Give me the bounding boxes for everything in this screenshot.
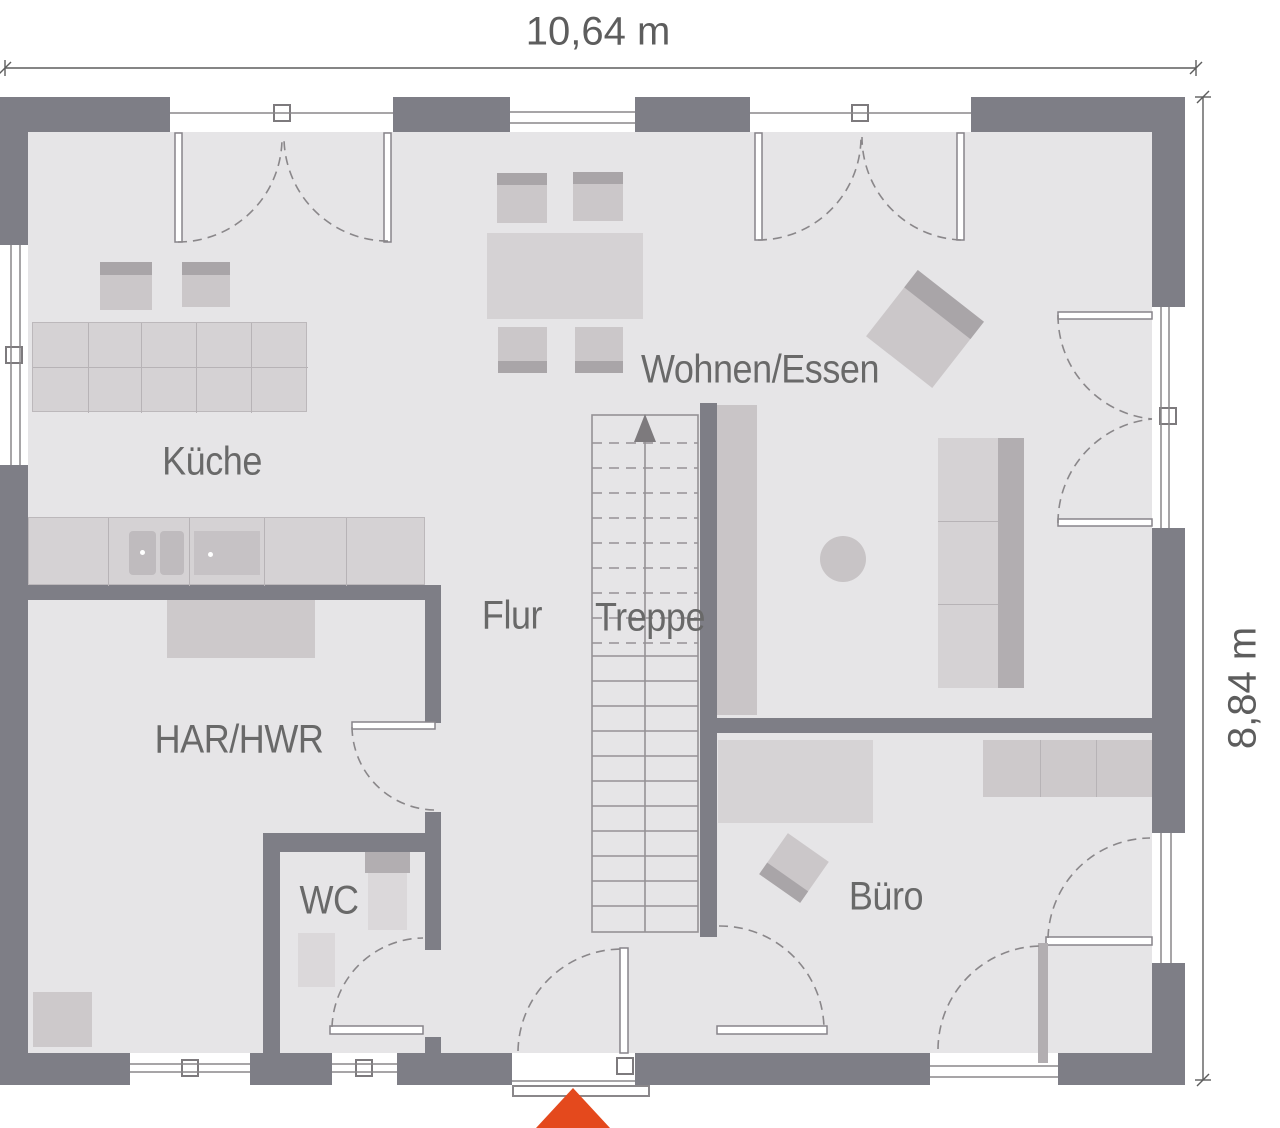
- door-leaf: [175, 133, 182, 242]
- door-leaf: [755, 133, 762, 240]
- door-leaf: [957, 133, 964, 240]
- door-leaf: [1058, 312, 1152, 319]
- label-hallway: Flur: [482, 594, 542, 639]
- door-leaf: [717, 1026, 827, 1034]
- label-office: Büro: [849, 875, 923, 920]
- door-leaf: [1046, 937, 1152, 945]
- label-kitchen: Küche: [162, 440, 262, 485]
- floor-plan: Küche Wohnen/Essen Flur Treppe HAR/HWR W…: [0, 0, 1280, 1128]
- door-leaf: [330, 1026, 423, 1034]
- door-leaf: [352, 722, 435, 729]
- dimension-line-width: [0, 60, 1202, 76]
- door-leaf: [1058, 519, 1152, 526]
- label-living-dining: Wohnen/Essen: [641, 348, 879, 393]
- label-wc: WC: [299, 879, 358, 924]
- door-leaf: [384, 133, 391, 242]
- door-leaf: [620, 948, 628, 1053]
- window-glazing-lines: [11, 112, 1171, 1081]
- label-staircase: Treppe: [595, 596, 705, 641]
- dimension-width-label: 10,64 m: [526, 10, 671, 55]
- stair-arrow-up-icon: [634, 414, 656, 442]
- dimension-line-height: [1195, 91, 1211, 1086]
- plan-linework: [0, 0, 1280, 1128]
- door-leaf: [1038, 943, 1048, 1063]
- label-utility: HAR/HWR: [155, 718, 324, 763]
- dimension-height-label: 8,84 m: [1221, 627, 1266, 749]
- entrance-marker-icon: [536, 1088, 610, 1128]
- staircase: [592, 414, 698, 932]
